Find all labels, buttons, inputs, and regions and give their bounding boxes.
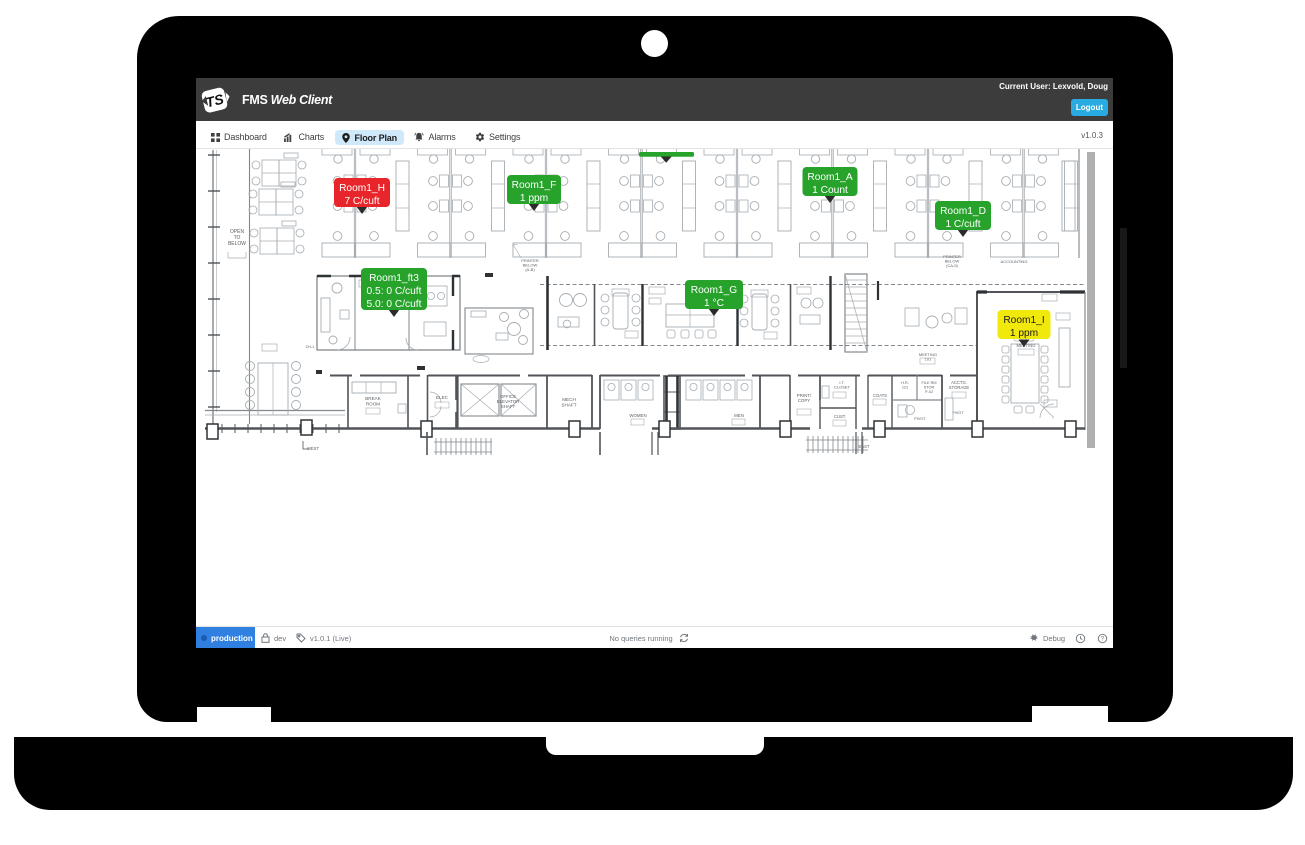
svg-text:?: ? [1101,635,1105,642]
svg-text:ACCTG.STORAGE: ACCTG.STORAGE [949,380,970,390]
svg-text:BREAKROOM: BREAKROOM [365,396,382,406]
svg-text:WOMEN: WOMEN [629,413,646,418]
svg-text:Room1_I: Room1_I [1003,315,1044,326]
svg-text:ACCOUNTING: ACCOUNTING [1001,259,1028,264]
svg-text:H.R.121: H.R.121 [901,381,909,389]
svg-text:PIVOT: PIVOT [914,417,926,421]
svg-text:PRINT/COPY: PRINT/COPY [797,393,812,403]
svg-text:0.5: 0 C/cuft: 0.5: 0 C/cuft [367,286,422,297]
svg-text:CH-1: CH-1 [306,345,315,349]
svg-text:MECHSHAFT: MECHSHAFT [561,397,576,407]
svg-text:MEN: MEN [734,413,744,418]
svg-text:1 ppm: 1 ppm [520,193,548,204]
svg-text:CUST.: CUST. [834,414,846,419]
svg-text:Room1_F: Room1_F [512,180,557,191]
svg-text:7 C/cuft: 7 C/cuft [344,196,379,207]
svg-text:EAST: EAST [859,444,870,449]
svg-text:Room1_H: Room1_H [339,183,385,194]
svg-text:Room1_D: Room1_D [940,206,986,217]
svg-text:1 C/cuft: 1 C/cuft [945,219,980,230]
svg-text:5.0: 0 C/cuft: 5.0: 0 C/cuft [367,299,422,310]
svg-text:WEST: WEST [307,446,320,451]
svg-text:1 °C: 1 °C [704,298,724,309]
svg-text:COATS: COATS [873,393,887,398]
svg-text:1 ppm: 1 ppm [1010,328,1038,339]
svg-text:Room1_A: Room1_A [807,172,853,183]
svg-text:Room1_ft3: Room1_ft3 [369,273,419,284]
svg-text:1 Count: 1 Count [812,185,848,196]
svg-text:PIVOT: PIVOT [952,411,964,415]
svg-text:Room1_G: Room1_G [691,285,738,296]
svg-text:ELEC: ELEC [436,395,449,400]
